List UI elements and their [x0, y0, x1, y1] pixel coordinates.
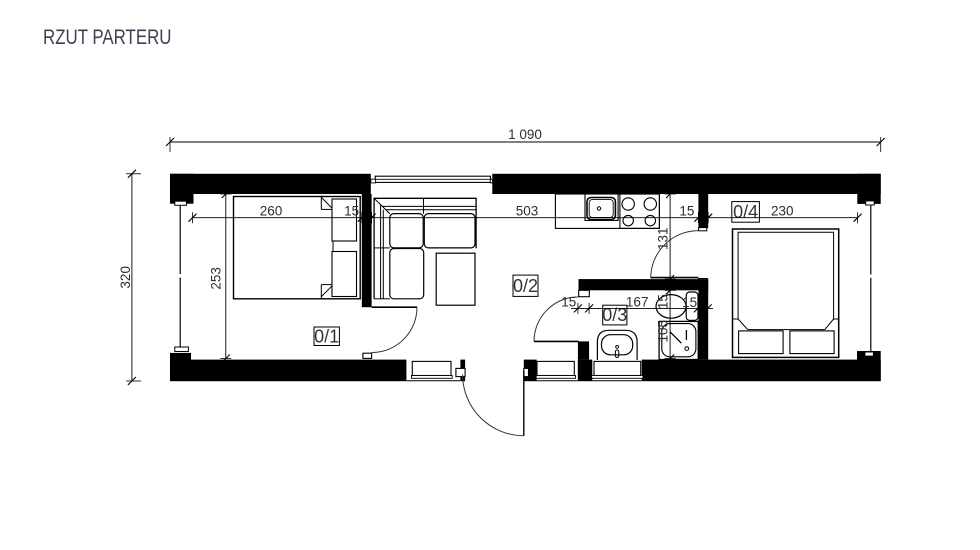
svg-text:131: 131 — [656, 227, 671, 250]
svg-text:15: 15 — [656, 294, 671, 309]
svg-text:1 090: 1 090 — [508, 127, 542, 142]
svg-text:15: 15 — [679, 203, 694, 218]
svg-text:15: 15 — [344, 203, 359, 218]
svg-text:503: 503 — [516, 203, 539, 218]
svg-text:15: 15 — [682, 295, 697, 310]
svg-text:253: 253 — [208, 267, 223, 290]
svg-text:230: 230 — [771, 203, 794, 218]
svg-text:15: 15 — [561, 295, 576, 310]
svg-text:0/1: 0/1 — [314, 327, 339, 347]
svg-text:RZUT PARTERU: RZUT PARTERU — [43, 26, 172, 49]
svg-text:0/4: 0/4 — [733, 202, 758, 222]
svg-text:105: 105 — [656, 320, 671, 343]
svg-text:167: 167 — [626, 295, 649, 310]
svg-text:0/2: 0/2 — [513, 276, 538, 296]
svg-text:260: 260 — [260, 203, 283, 218]
svg-text:320: 320 — [118, 266, 133, 289]
